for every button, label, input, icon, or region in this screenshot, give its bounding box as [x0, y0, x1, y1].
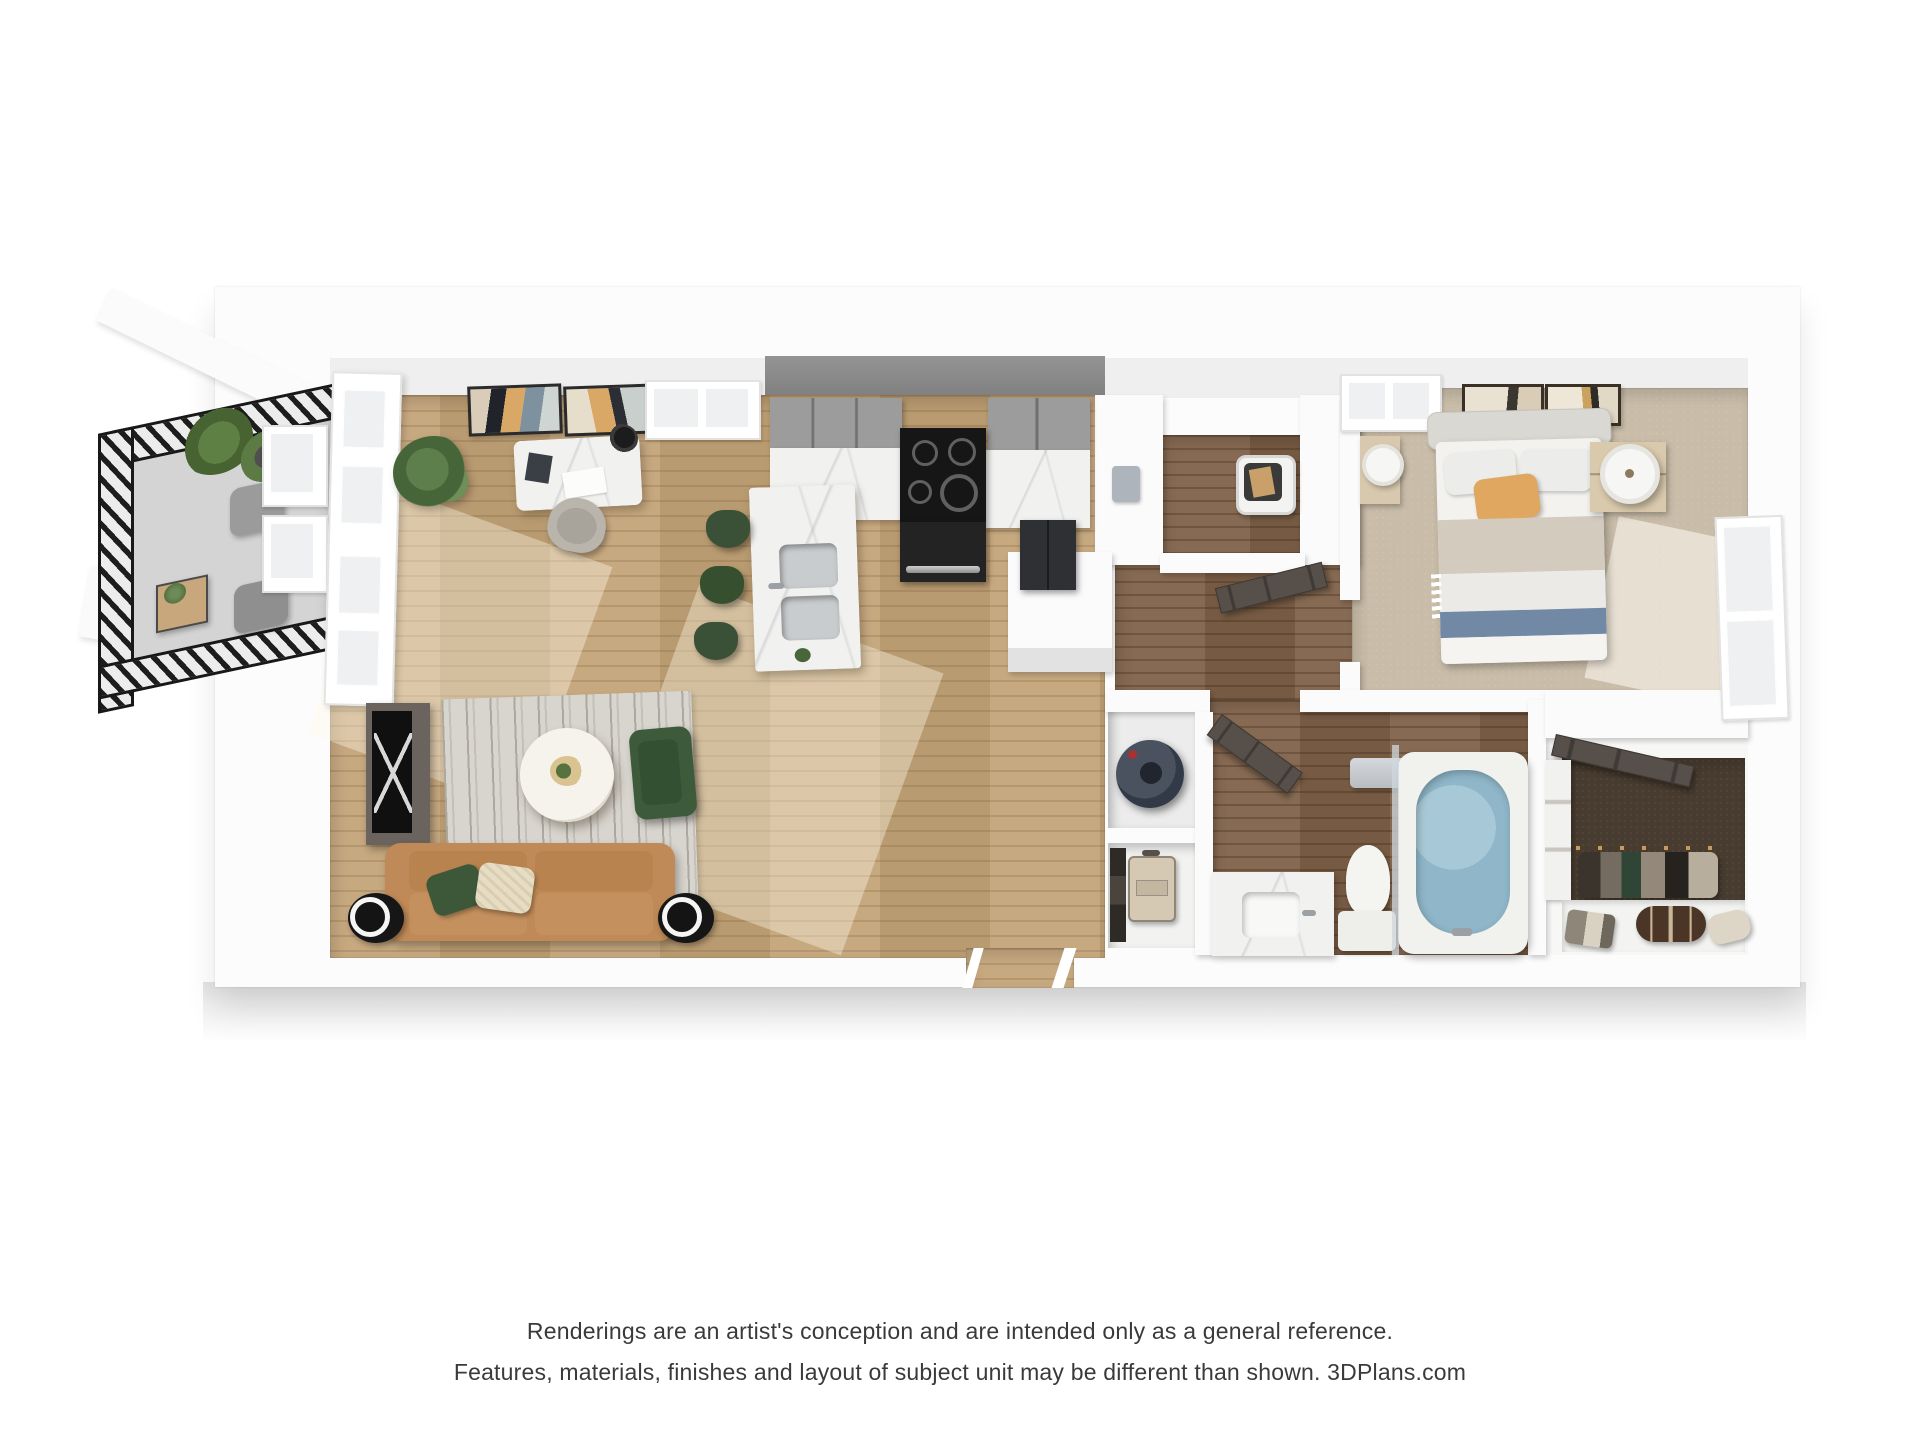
sofa	[385, 843, 675, 941]
shower-glass-panel	[1392, 745, 1399, 955]
laundry-basket-box	[1249, 466, 1276, 497]
top-wall-window-living	[645, 380, 761, 440]
toilet-bowl	[1346, 845, 1390, 915]
closet-folded-clothes	[1564, 909, 1616, 949]
mattress-foot	[1443, 634, 1606, 664]
console-x-frame	[374, 733, 412, 813]
left-wall-window-2	[262, 515, 328, 593]
desk-lamp	[604, 424, 638, 454]
nightstand-lamp-right	[1600, 444, 1660, 504]
water-heater-vent	[1140, 762, 1162, 784]
suitcase-strap	[1136, 880, 1168, 896]
window-pane	[1726, 619, 1777, 707]
side-table-lamp-right	[658, 893, 714, 943]
wall-stub-shadow-face	[1008, 648, 1112, 672]
kitchen-upper-cabinets-right	[988, 398, 1090, 450]
wall-bedroom-closet	[1545, 690, 1748, 738]
left-wall-window-1	[262, 425, 328, 507]
sofa-pillow-cream	[474, 861, 536, 914]
storage-suitcase	[1128, 856, 1176, 922]
wall-bath-closet-divider	[1528, 700, 1546, 955]
lamp-shade-right	[662, 897, 702, 937]
island-sink-basin-2	[781, 595, 841, 641]
oven-handle	[906, 566, 980, 573]
wall-bath-top-left	[1105, 690, 1210, 712]
laundry-basket	[1236, 455, 1296, 515]
nightstand-lamp-left	[1362, 444, 1404, 486]
french-door-pane-2	[340, 465, 384, 524]
french-door-pane-1	[342, 389, 386, 448]
burner-4	[940, 474, 978, 512]
storage-hanging-coats	[1110, 848, 1126, 942]
kitchen-upper-cabinets-left	[770, 398, 902, 448]
wall-art-frame-living-1	[467, 383, 563, 436]
foundation-base	[203, 982, 1806, 1040]
window-pane	[653, 388, 699, 428]
closet-side-shelving	[1545, 760, 1571, 900]
burner-1	[912, 440, 938, 466]
entry-door-jamb-right	[1052, 948, 1077, 988]
water-heater	[1116, 740, 1184, 808]
sofa-seat-cushion-2	[535, 893, 653, 935]
armchair-seat	[637, 739, 682, 806]
coffee-table-decor	[550, 756, 584, 786]
disclaimer-line-2: Features, materials, finishes and layout…	[0, 1359, 1920, 1386]
green-armchair	[628, 725, 698, 820]
desk-papers	[562, 467, 608, 499]
sofa-back-cushion-2	[535, 851, 653, 891]
bath-vanity	[1212, 872, 1334, 956]
floorplan-canvas: Renderings are an artist's conception an…	[0, 0, 1920, 1440]
desk-chair-seat	[553, 504, 600, 548]
kitchen-counter-corner	[985, 450, 1090, 528]
water-heater-valve	[1128, 750, 1137, 759]
vanity-faucet	[1302, 910, 1316, 916]
indoor-plant	[393, 436, 475, 510]
closet-hanger-rod	[1576, 846, 1720, 850]
island-faucet	[768, 583, 784, 590]
disclaimer-block: Renderings are an artist's conception an…	[0, 1318, 1920, 1400]
window-pane	[1348, 382, 1386, 420]
range-cooktop	[900, 428, 986, 522]
utility-wall-towel	[1112, 466, 1140, 502]
accent-pillow-tan	[1472, 472, 1541, 524]
wall-niche-bath-divider	[1195, 712, 1213, 955]
burner-3	[908, 480, 932, 504]
media-console	[366, 703, 430, 845]
oven-front	[900, 522, 986, 582]
refrigerator	[1020, 520, 1076, 590]
vanity-sink	[1242, 892, 1300, 938]
desk-books	[525, 452, 553, 483]
coffee-table	[520, 728, 614, 822]
wall-laundry-bottom	[1160, 553, 1305, 573]
disclaimer-line-1: Renderings are an artist's conception an…	[0, 1318, 1920, 1345]
bathtub-water	[1416, 770, 1510, 934]
closet-duffel-bag	[1636, 906, 1706, 942]
window-pane	[1392, 382, 1430, 420]
closet-hanging-clothes	[1578, 852, 1718, 898]
entry-door-opening	[966, 948, 1074, 988]
bathtub	[1398, 752, 1528, 954]
kitchen-accent-wall	[765, 356, 1105, 400]
island-sink-basin-1	[779, 543, 839, 589]
burner-2	[948, 438, 976, 466]
toilet	[1338, 845, 1396, 955]
lamp-shade-left	[350, 897, 390, 937]
bar-stool-2	[700, 566, 744, 604]
french-door-pane-4	[336, 629, 379, 686]
kitchen-island	[749, 484, 861, 672]
window-pane	[270, 433, 314, 493]
island-decor-plant	[794, 648, 810, 663]
bedroom-right-window	[1714, 515, 1789, 721]
lamp-finial	[1625, 469, 1634, 478]
entry-door-jamb-left	[962, 948, 983, 988]
balcony-french-door	[324, 371, 403, 707]
toilet-tank	[1338, 911, 1396, 951]
bathtub-faucet	[1452, 928, 1472, 936]
bar-stool-1	[706, 510, 750, 548]
suitcase-handle	[1142, 850, 1160, 856]
french-door-pane-3	[338, 555, 382, 614]
window-pane	[1723, 525, 1774, 613]
window-pane	[705, 388, 749, 428]
window-pane	[270, 523, 314, 579]
wall-bath-top-right	[1300, 690, 1545, 712]
bar-stool-3	[694, 622, 738, 660]
bed	[1427, 408, 1615, 663]
side-table-lamp-left	[348, 893, 404, 943]
